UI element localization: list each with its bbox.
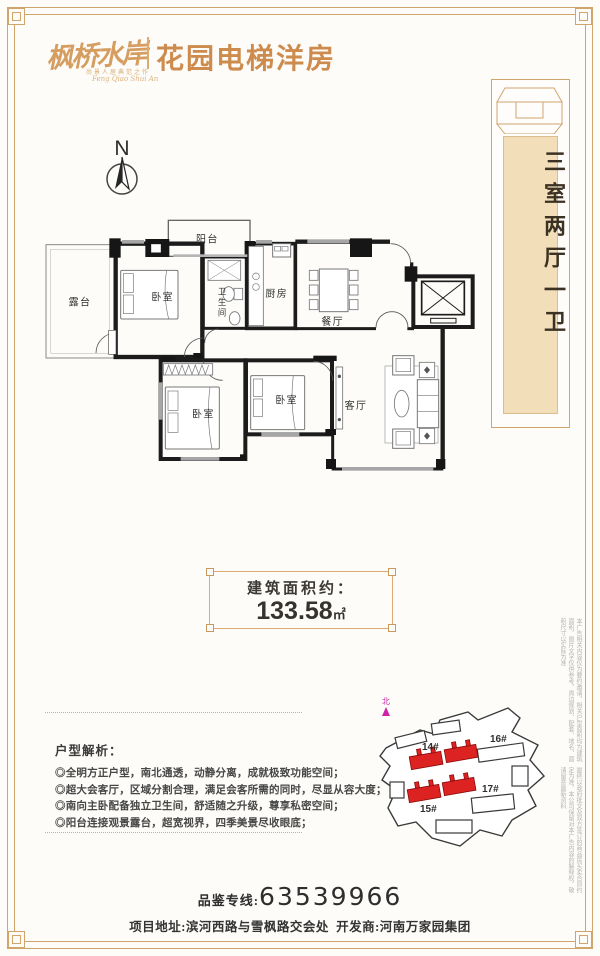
siteplan-drawing: 14# 15# 16# 17# 北 [360, 690, 552, 862]
brand-tagline-en: Feng Qiao Shui An [92, 75, 158, 83]
developer-label: 开发商: [336, 920, 380, 934]
box-corner-dot [206, 624, 214, 632]
disclaimer-col: 本广告相关内容仅为要约邀请，相关户型面积均为建筑面积，图片文字仅供参考，周边规划… [558, 618, 582, 764]
dotted-divider-top [45, 712, 302, 713]
siteplan-north-arrow [382, 707, 390, 716]
room-label-living: 客厅 [345, 399, 368, 412]
room-label-bath-2: 生 [218, 297, 228, 307]
area-label: 建筑面积约： [210, 577, 392, 598]
analysis-item: ◎南向主卧配备独立卫生间，舒适随之升级，尊享私密空间； [55, 798, 385, 815]
compass-n-label: N [114, 137, 129, 160]
address-value: 滨河西路与雪枫路交会处 [186, 920, 329, 934]
room-label-balcony: 阳台 [196, 232, 219, 245]
analysis-item: ◎全明方正户型，南北通透，动静分离，成就极致功能空间； [55, 765, 385, 782]
scroll-banner: 三室两厅一卫 [491, 79, 570, 428]
analysis-item: ◎超大会客厅，区域分割合理，满足会客所需的同时，尽显从容大度； [55, 782, 385, 799]
siteplan-north-label: 北 [382, 697, 390, 706]
room-label-dining: 餐厅 [321, 315, 344, 328]
apartment-type-text: 三室两厅一卫 [492, 136, 569, 356]
scroll-cap-ornament [492, 80, 567, 134]
building-label-14: 14# [422, 742, 439, 753]
building-area-box: 建筑面积约： 133.58㎡ [209, 571, 393, 629]
address-label: 项目地址: [129, 920, 186, 934]
room-label-terrace: 露台 [69, 296, 92, 309]
north-compass: N [98, 137, 146, 201]
room-label-bedroom-main: 卧室 [151, 290, 174, 303]
box-corner-dot [206, 568, 214, 576]
box-corner-dot [388, 568, 396, 576]
room-label-kitchen: 厨房 [265, 287, 288, 300]
page-title: 花园电梯洋房 [156, 37, 336, 77]
room-label-bath-3: 间 [218, 308, 228, 318]
hotline-row: 品鉴专线:63539966 [0, 882, 600, 911]
building-label-16: 16# [490, 734, 507, 745]
area-value: 133.58㎡ [210, 598, 392, 628]
logo-divider [147, 37, 149, 69]
box-corner-dot [388, 624, 396, 632]
developer-value: 河南万家园集团 [380, 920, 471, 934]
dotted-divider-bottom [45, 832, 302, 833]
poster-page: 枫桥水岸 尚景人居典范之作 Feng Qiao Shui An 花园电梯洋房 三… [0, 0, 600, 956]
frame-corner-ornament [8, 8, 25, 25]
analysis-block: 户型解析： ◎全明方正户型，南北通透，动静分离，成就极致功能空间； ◎超大会客厅… [55, 740, 385, 831]
building-label-17: 17# [482, 784, 499, 795]
building-label-15: 15# [420, 804, 437, 815]
analysis-title: 户型解析： [55, 740, 385, 759]
floorplan-drawing: 露台 卧室 阳台 卫 生 间 厨房 餐厅 客厅 卧室 卧室 [30, 213, 490, 513]
disclaimer-fineprint: 本广告相关内容仅为要约邀请，相关户型面积均为建筑面积，图片文字仅供参考，周边规划… [558, 618, 582, 894]
address-row: 项目地址:滨河西路与雪枫路交会处 开发商:河南万家园集团 [0, 916, 600, 935]
disclaimer-col: 最终以政府批文及双方签订的商品房买卖合同约定为准，本公司保留对本广告内容的解释权… [558, 767, 582, 894]
hotline-label: 品鉴专线: [198, 893, 259, 908]
hotline-number: 63539966 [259, 882, 402, 911]
room-label-bedroom-3: 卧室 [275, 394, 298, 407]
room-label-bedroom-2: 卧室 [192, 408, 215, 421]
area-unit: ㎡ [333, 607, 346, 622]
analysis-item: ◎阳台连接观景露台，超宽视界，四季美景尽收眼底； [55, 815, 385, 832]
area-number: 133.58 [256, 597, 332, 625]
frame-corner-ornament [575, 8, 592, 25]
room-label-bath-1: 卫 [218, 286, 228, 296]
